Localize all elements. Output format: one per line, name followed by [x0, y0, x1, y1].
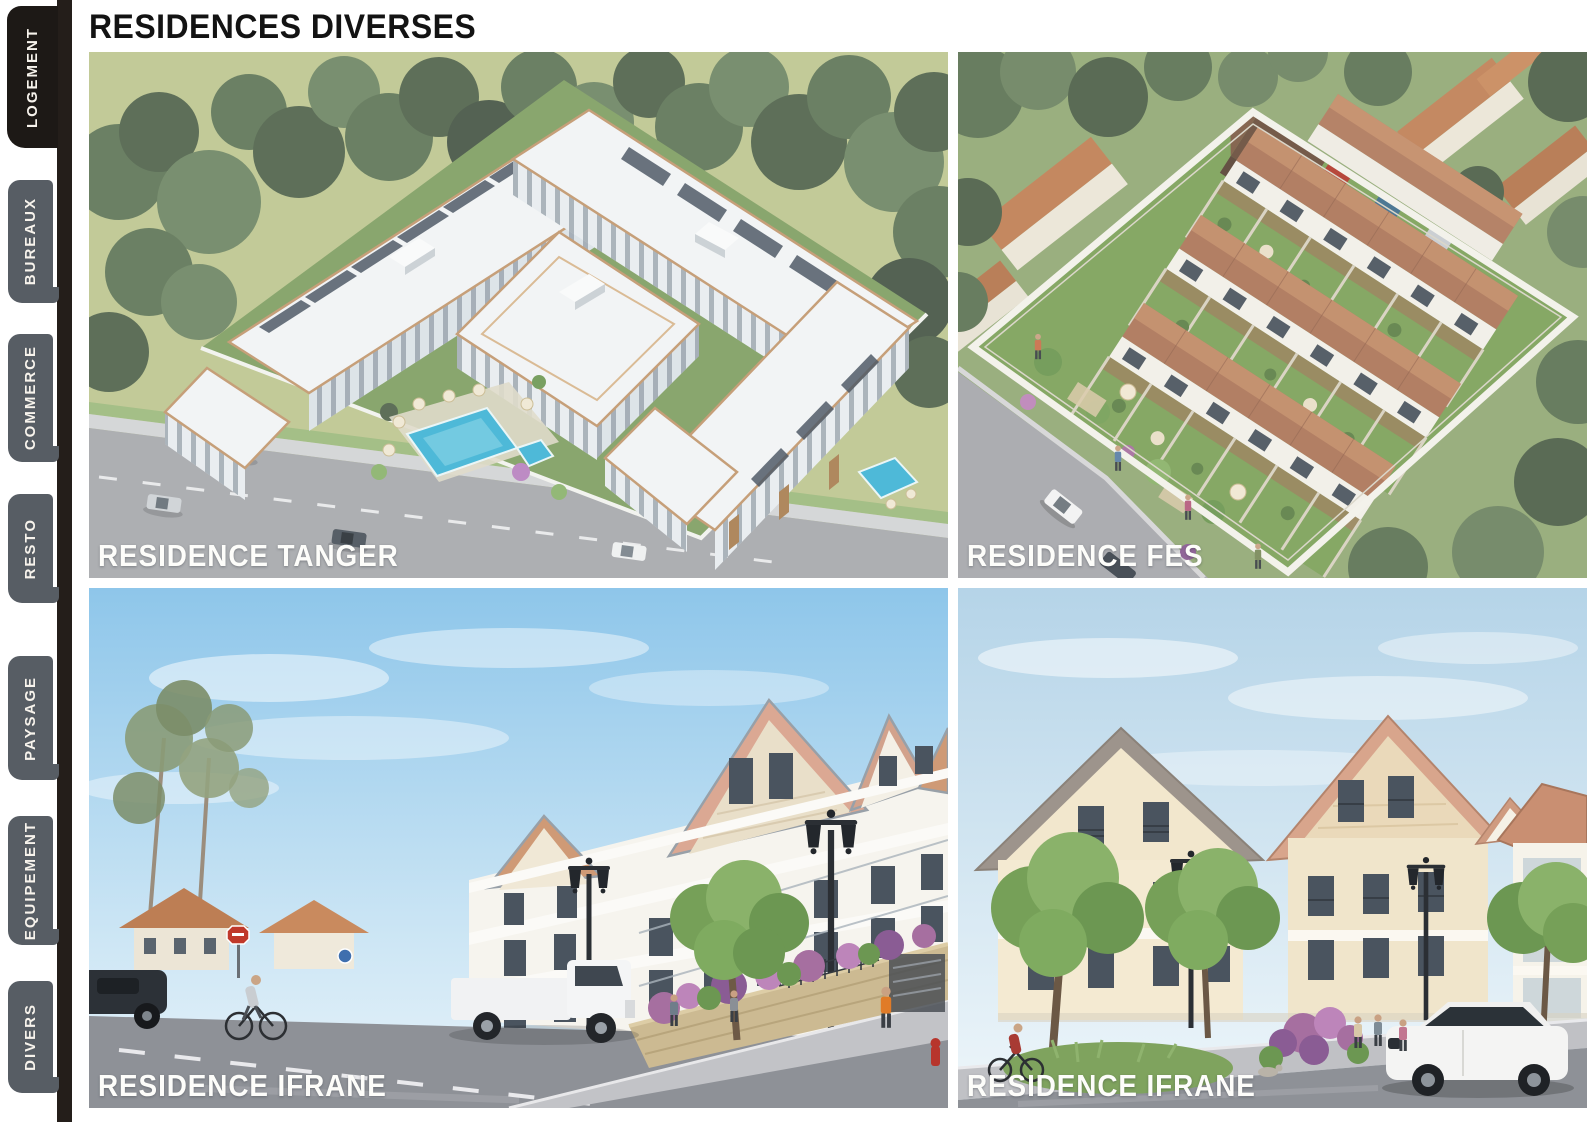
sidebar-tab-bureaux[interactable]: BUREAUX — [8, 180, 53, 303]
sidebar-tab-commerce[interactable]: COMMERCE — [8, 334, 53, 462]
fire-hydrant — [931, 1038, 941, 1066]
sidebar-tab-paysage[interactable]: PAYSAGE — [8, 656, 53, 780]
image-caption: RESIDENCE IFRANE — [98, 1068, 387, 1104]
ifrane-corner-scene — [958, 588, 1587, 1108]
tab-label: RESTO — [22, 518, 39, 579]
tanger-aerial-scene — [89, 52, 948, 578]
rendering-residence-tanger: RESIDENCE TANGER — [89, 52, 948, 578]
tab-label: COMMERCE — [22, 345, 39, 450]
fes-aerial-scene — [958, 52, 1587, 578]
image-caption: RESIDENCE IFRANE — [967, 1068, 1256, 1104]
round-sign — [338, 949, 352, 963]
tab-label: EQUIPEMENT — [22, 821, 39, 940]
sidebar-rail — [57, 0, 72, 1122]
rendering-residence-fes: RESIDENCE FES — [958, 52, 1587, 578]
sidebar-tab-resto[interactable]: RESTO — [8, 494, 53, 603]
rendering-residence-ifrane-corner: RESIDENCE IFRANE — [958, 588, 1587, 1108]
ifrane-street-scene — [89, 588, 948, 1108]
tab-label: DIVERS — [22, 1003, 39, 1071]
image-caption: RESIDENCE FES — [967, 538, 1204, 574]
page-title: RESIDENCES DIVERSES — [89, 8, 476, 47]
tab-label: LOGEMENT — [24, 27, 41, 128]
tab-label: PAYSAGE — [22, 676, 39, 761]
sidebar-tab-divers[interactable]: DIVERS — [8, 981, 53, 1093]
image-caption: RESIDENCE TANGER — [98, 538, 399, 574]
sidebar-tab-logement[interactable]: LOGEMENT — [7, 6, 58, 148]
rendering-residence-ifrane-street: RESIDENCE IFRANE — [89, 588, 948, 1108]
sidebar-tab-equipement[interactable]: EQUIPEMENT — [8, 816, 53, 945]
tab-label: BUREAUX — [22, 197, 39, 285]
